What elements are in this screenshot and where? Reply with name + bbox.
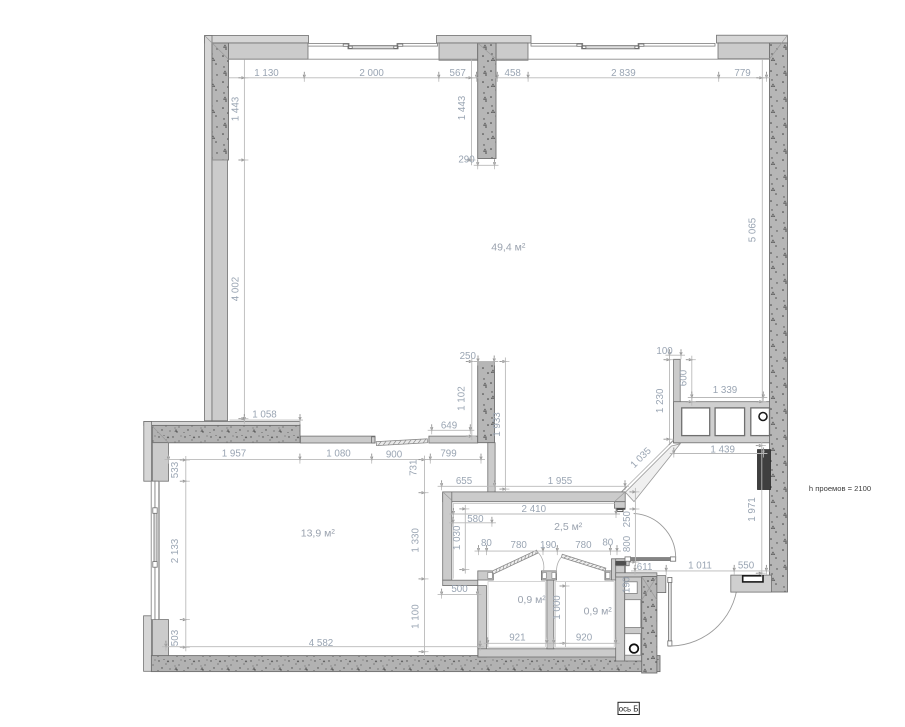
svg-text:0,9 м²: 0,9 м² xyxy=(518,594,547,606)
svg-text:250: 250 xyxy=(622,510,633,527)
svg-text:80: 80 xyxy=(602,537,613,548)
svg-text:290: 290 xyxy=(458,155,475,166)
svg-text:799: 799 xyxy=(440,449,456,460)
svg-text:2 839: 2 839 xyxy=(611,68,636,79)
svg-text:1 330: 1 330 xyxy=(411,527,422,552)
svg-text:649: 649 xyxy=(441,421,457,432)
svg-text:1 957: 1 957 xyxy=(222,449,247,460)
svg-text:780: 780 xyxy=(575,540,592,551)
svg-text:5 065: 5 065 xyxy=(748,217,759,242)
svg-text:1 443: 1 443 xyxy=(457,95,468,120)
svg-text:1 933: 1 933 xyxy=(492,412,503,437)
svg-text:1 130: 1 130 xyxy=(254,68,279,79)
svg-text:1 339: 1 339 xyxy=(713,385,738,396)
svg-text:1 080: 1 080 xyxy=(326,449,351,460)
svg-text:1 100: 1 100 xyxy=(411,604,422,629)
svg-text:780: 780 xyxy=(511,540,528,551)
svg-text:567: 567 xyxy=(450,68,466,79)
svg-text:100: 100 xyxy=(656,346,673,357)
svg-text:4 582: 4 582 xyxy=(309,638,334,649)
svg-text:13,9 м²: 13,9 м² xyxy=(301,528,336,540)
svg-text:533: 533 xyxy=(170,461,181,478)
svg-text:611: 611 xyxy=(637,562,653,573)
svg-text:1 439: 1 439 xyxy=(710,445,735,456)
svg-text:503: 503 xyxy=(170,629,181,646)
svg-text:580: 580 xyxy=(467,514,484,525)
svg-text:2 133: 2 133 xyxy=(170,538,181,563)
svg-text:49,4 м²: 49,4 м² xyxy=(491,242,526,254)
svg-text:900: 900 xyxy=(386,450,403,461)
svg-text:1 971: 1 971 xyxy=(747,497,758,522)
svg-text:1 030: 1 030 xyxy=(452,525,463,550)
svg-text:250: 250 xyxy=(460,351,477,362)
svg-text:600: 600 xyxy=(679,369,690,386)
svg-text:4 002: 4 002 xyxy=(231,277,242,302)
svg-text:h проемов = 2100: h проемов = 2100 xyxy=(809,484,871,493)
svg-text:1 443: 1 443 xyxy=(231,96,242,121)
svg-text:550: 550 xyxy=(738,561,755,572)
svg-text:655: 655 xyxy=(456,476,473,487)
svg-text:2 410: 2 410 xyxy=(522,504,547,515)
svg-text:190: 190 xyxy=(540,540,557,551)
svg-text:2,5 м²: 2,5 м² xyxy=(554,521,583,533)
svg-text:1 230: 1 230 xyxy=(655,388,666,413)
svg-text:190: 190 xyxy=(622,576,633,593)
svg-text:1 000: 1 000 xyxy=(552,595,563,620)
svg-text:ось Б: ось Б xyxy=(619,705,639,714)
svg-text:779: 779 xyxy=(734,68,750,79)
svg-text:1 955: 1 955 xyxy=(548,476,573,487)
svg-text:2 000: 2 000 xyxy=(359,68,384,79)
svg-text:80: 80 xyxy=(481,538,492,549)
svg-text:920: 920 xyxy=(576,632,593,643)
svg-text:1 011: 1 011 xyxy=(688,561,712,572)
svg-text:458: 458 xyxy=(505,68,522,79)
svg-text:731: 731 xyxy=(409,460,420,476)
svg-text:1 058: 1 058 xyxy=(252,410,277,421)
svg-text:500: 500 xyxy=(451,584,468,595)
svg-text:1 102: 1 102 xyxy=(457,386,468,411)
svg-text:800: 800 xyxy=(622,535,633,552)
svg-text:921: 921 xyxy=(509,632,525,643)
svg-text:0,9 м²: 0,9 м² xyxy=(584,606,613,618)
